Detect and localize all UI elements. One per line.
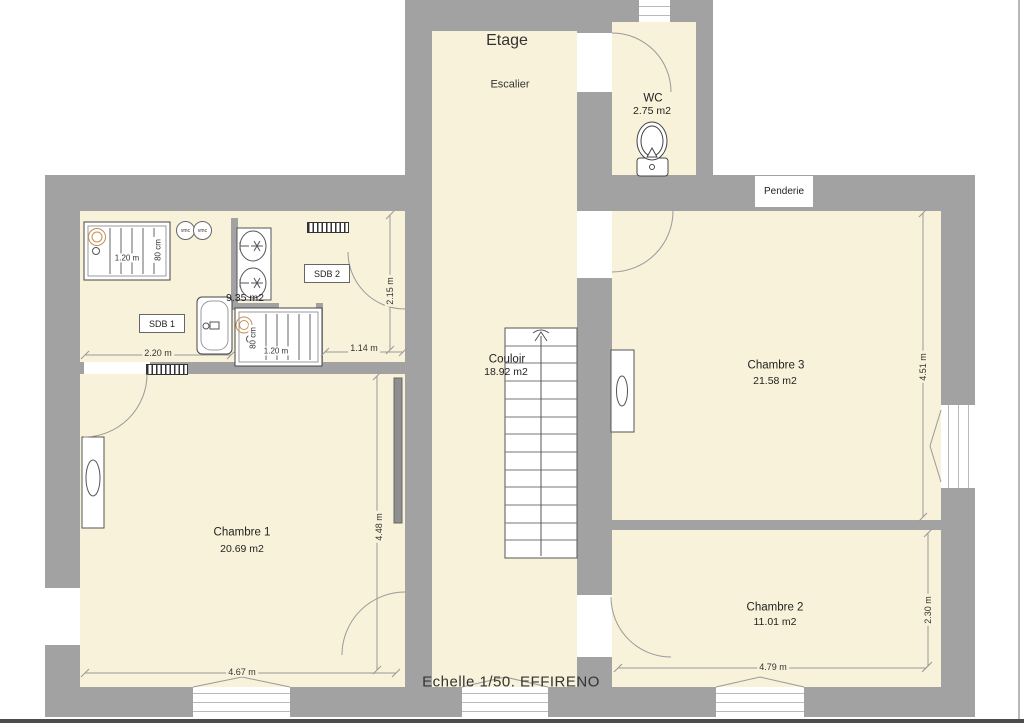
wall xyxy=(696,0,713,175)
sdb2-area: 9.35 m2 xyxy=(226,292,264,304)
chambre2-area: 11.01 m2 xyxy=(754,616,797,628)
wall xyxy=(577,92,612,211)
window-icon xyxy=(45,588,80,645)
wall xyxy=(577,278,612,595)
dim-sdb1-width: 2.20 m xyxy=(142,348,174,358)
couloir-label: Couloir xyxy=(489,353,525,366)
wall xyxy=(45,175,432,211)
dim-shower-bottom-width: 1.20 m xyxy=(262,346,290,355)
window-icon xyxy=(462,687,548,717)
page-border-bottom xyxy=(0,719,1024,723)
dim-sdb2-clearance: 1.14 m xyxy=(348,343,380,353)
wall xyxy=(548,687,716,717)
chambre3-area: 21.58 m2 xyxy=(753,375,797,387)
dim-chambre1-width: 4.67 m xyxy=(226,667,258,677)
wall xyxy=(941,211,975,405)
escalier-label: Escalier xyxy=(490,79,529,92)
sdb1-label-box: SDB 1 xyxy=(139,314,185,333)
dim-chambre1-depth: 4.48 m xyxy=(374,511,384,543)
dim-chambre2-depth: 2.30 m xyxy=(923,594,933,626)
wall xyxy=(596,0,639,22)
wc-label: WC xyxy=(643,92,662,105)
dim-chambre3-depth: 4.51 m xyxy=(918,351,928,383)
window-icon xyxy=(639,0,670,22)
window-icon xyxy=(941,405,975,488)
door-frame-divider xyxy=(418,590,422,655)
wall xyxy=(941,488,975,717)
sdb2-label-box: SDB 2 xyxy=(304,264,350,283)
wall xyxy=(45,645,80,690)
wall xyxy=(290,687,462,717)
chambre1-label: Chambre 1 xyxy=(214,526,271,539)
window-icon xyxy=(716,687,804,717)
radiator-icon xyxy=(146,364,188,375)
wall xyxy=(45,687,193,717)
couloir-area: 18.92 m2 xyxy=(484,366,528,378)
wall xyxy=(612,520,941,530)
dim-sdb2-depth: 2.15 m xyxy=(385,275,395,307)
dim-chambre2-width: 4.79 m xyxy=(757,662,789,672)
wall xyxy=(150,362,405,374)
vmc-vent-icon: vmc xyxy=(193,221,212,240)
dim-shower-top-width: 1.20 m xyxy=(113,253,141,262)
wc-area: 2.75 m2 xyxy=(633,105,671,117)
wall xyxy=(316,303,323,366)
vmc-label: vmc xyxy=(181,228,190,234)
radiator-icon xyxy=(307,222,349,233)
wall xyxy=(80,362,84,374)
window-icon xyxy=(193,687,290,717)
sdb1-label: SDB 1 xyxy=(149,319,175,329)
wall xyxy=(45,211,80,588)
chambre2-label: Chambre 2 xyxy=(747,601,804,614)
vmc-label: vmc xyxy=(198,228,207,234)
chambre1-area: 20.69 m2 xyxy=(220,543,264,555)
sdb2-label: SDB 2 xyxy=(314,269,340,279)
floor-title: Etage xyxy=(486,32,528,50)
chambre3-label: Chambre 3 xyxy=(748,359,805,372)
wall xyxy=(405,0,432,690)
penderie-label-box: Penderie xyxy=(755,176,813,207)
penderie-label: Penderie xyxy=(764,186,804,197)
wall xyxy=(804,687,975,717)
dim-shower-top-depth: 80 cm xyxy=(153,237,162,263)
room-sdb xyxy=(80,211,405,362)
wall xyxy=(432,0,577,31)
page-border-right xyxy=(1018,0,1020,719)
wall xyxy=(235,303,279,310)
floor-plan-sheet: Penderie xyxy=(0,0,1024,723)
scale-note: Echelle 1/50. EFFIRENO xyxy=(422,673,600,690)
dim-shower-bottom-depth: 80 cm xyxy=(248,325,257,351)
